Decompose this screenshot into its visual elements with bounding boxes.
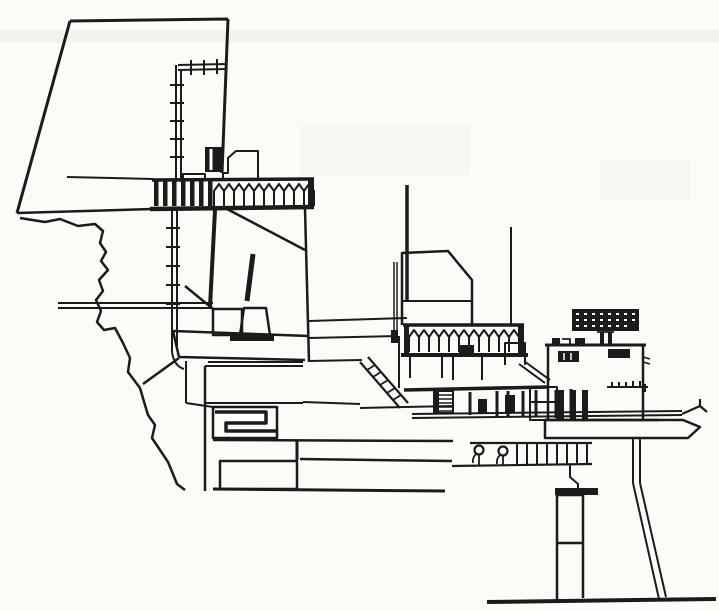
center-cabin xyxy=(402,251,472,325)
radar-antenna xyxy=(572,309,639,331)
roof-fitting-outline xyxy=(562,332,614,345)
terrain-rock-face xyxy=(20,218,185,490)
rooftop-cabinet xyxy=(205,147,222,172)
walkway-diagonals xyxy=(519,361,550,383)
hull-line-460 xyxy=(300,459,452,461)
hull-mid-lines xyxy=(303,402,453,408)
cliff-strut xyxy=(143,358,179,384)
cliff-outline xyxy=(17,19,228,213)
deck-base-line-left xyxy=(17,209,152,213)
cabin-front-post xyxy=(394,262,397,330)
upper-deck-line xyxy=(67,177,153,179)
deck-base-line-right xyxy=(150,207,314,209)
mid-grate-dark-edge xyxy=(434,391,439,413)
stairs-steps xyxy=(367,365,401,400)
bollard-fore xyxy=(475,446,484,455)
pipe-mast-lower-run xyxy=(172,209,184,369)
ground-line xyxy=(487,599,716,602)
roof-fittings xyxy=(552,332,612,345)
cabin-post-footing xyxy=(391,330,398,343)
paper-smudge-top xyxy=(0,30,719,43)
boom-beam xyxy=(545,420,700,438)
pipe-mast-top-flanges xyxy=(170,59,217,157)
gun-mount-sill xyxy=(230,335,274,341)
support-brace xyxy=(633,438,666,599)
drawing-svg xyxy=(0,0,719,611)
gun-barrel xyxy=(247,254,253,301)
gun-room-right-wall xyxy=(305,209,309,362)
paper-smudge-right xyxy=(600,160,690,200)
bollard-deck-stanchions xyxy=(517,443,587,464)
gun-room-braces xyxy=(185,209,305,309)
gun-pedestal xyxy=(240,308,270,335)
gun-room-column xyxy=(210,210,215,307)
under-deckhouse-columns xyxy=(558,390,588,420)
hull-top-lines xyxy=(186,361,303,407)
deckhouse-windows xyxy=(558,349,630,362)
gun-mount-box xyxy=(213,309,242,335)
mid-deck-boxes xyxy=(410,354,482,380)
left-railing-pickets xyxy=(214,184,314,206)
hull-bottom-line xyxy=(213,489,445,491)
technical-drawing-page xyxy=(0,0,719,611)
left-railing-end-post xyxy=(308,180,314,207)
boom-tip-hook xyxy=(682,399,707,414)
support-column xyxy=(557,495,583,601)
support-step-notch xyxy=(570,464,578,489)
mid-deck-lines xyxy=(309,318,407,388)
left-railing-bars xyxy=(154,181,213,206)
bollard-aft xyxy=(499,447,508,456)
center-railing-fitting xyxy=(459,345,474,355)
meander-duct xyxy=(215,412,276,431)
main-deck-line-right xyxy=(404,387,548,390)
rooftop-hut xyxy=(223,151,258,180)
paper-smudge-mid xyxy=(300,125,470,175)
access-pipe xyxy=(58,303,213,308)
bollard-stems xyxy=(473,454,503,465)
hull-line-440 xyxy=(213,440,453,441)
under-deckhouse-boxes xyxy=(530,387,557,420)
hull-lower-box xyxy=(220,461,297,489)
